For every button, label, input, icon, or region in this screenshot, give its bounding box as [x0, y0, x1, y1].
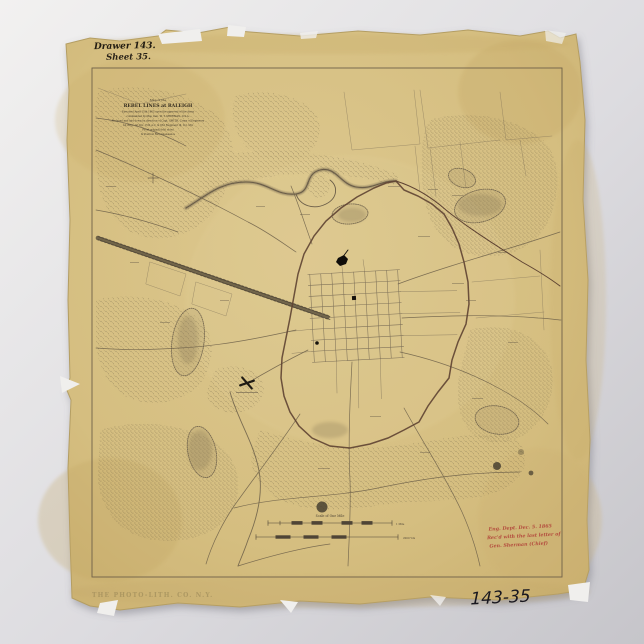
catalog-number: 143-35 [470, 586, 530, 609]
sheet-label: Sheet 35. [106, 52, 151, 63]
map-poster: Scale of One Mile 1 Mile 2000 Yds Map of… [0, 0, 644, 644]
title-line-8: & Position Reconnaissance [141, 133, 176, 136]
title-line-5: Reduced and laid down by direction of Ca… [112, 120, 205, 123]
landmark-square [352, 296, 356, 300]
title-line-2: REBEL LINES at RALEIGH [124, 103, 193, 109]
title-line-7: From original field notes [142, 129, 174, 132]
title-line-6: 1st Brig. 1st Div. 15th A.C. & 83d Regim… [123, 124, 194, 127]
stamp-text: THE PHOTO-LITH. CO. N.Y. [92, 592, 213, 599]
title-line-3: Executed April 15th 1863 upon the approv… [122, 111, 195, 114]
scale-caption: Scale of One Mile [316, 514, 345, 518]
scale-bar1-label: 1 Mile [396, 522, 405, 526]
drawer-label: Drawer 143. [93, 41, 156, 52]
title-line-4: commanded by Maj. Gen. W. T. SHERMAN, U.… [126, 115, 189, 118]
landmark-dot [315, 341, 319, 345]
battle-mark-caption-dash [236, 392, 258, 393]
title-line-1: Map of the [150, 98, 167, 102]
scale-bar2-label: 2000 Yds [403, 536, 416, 540]
